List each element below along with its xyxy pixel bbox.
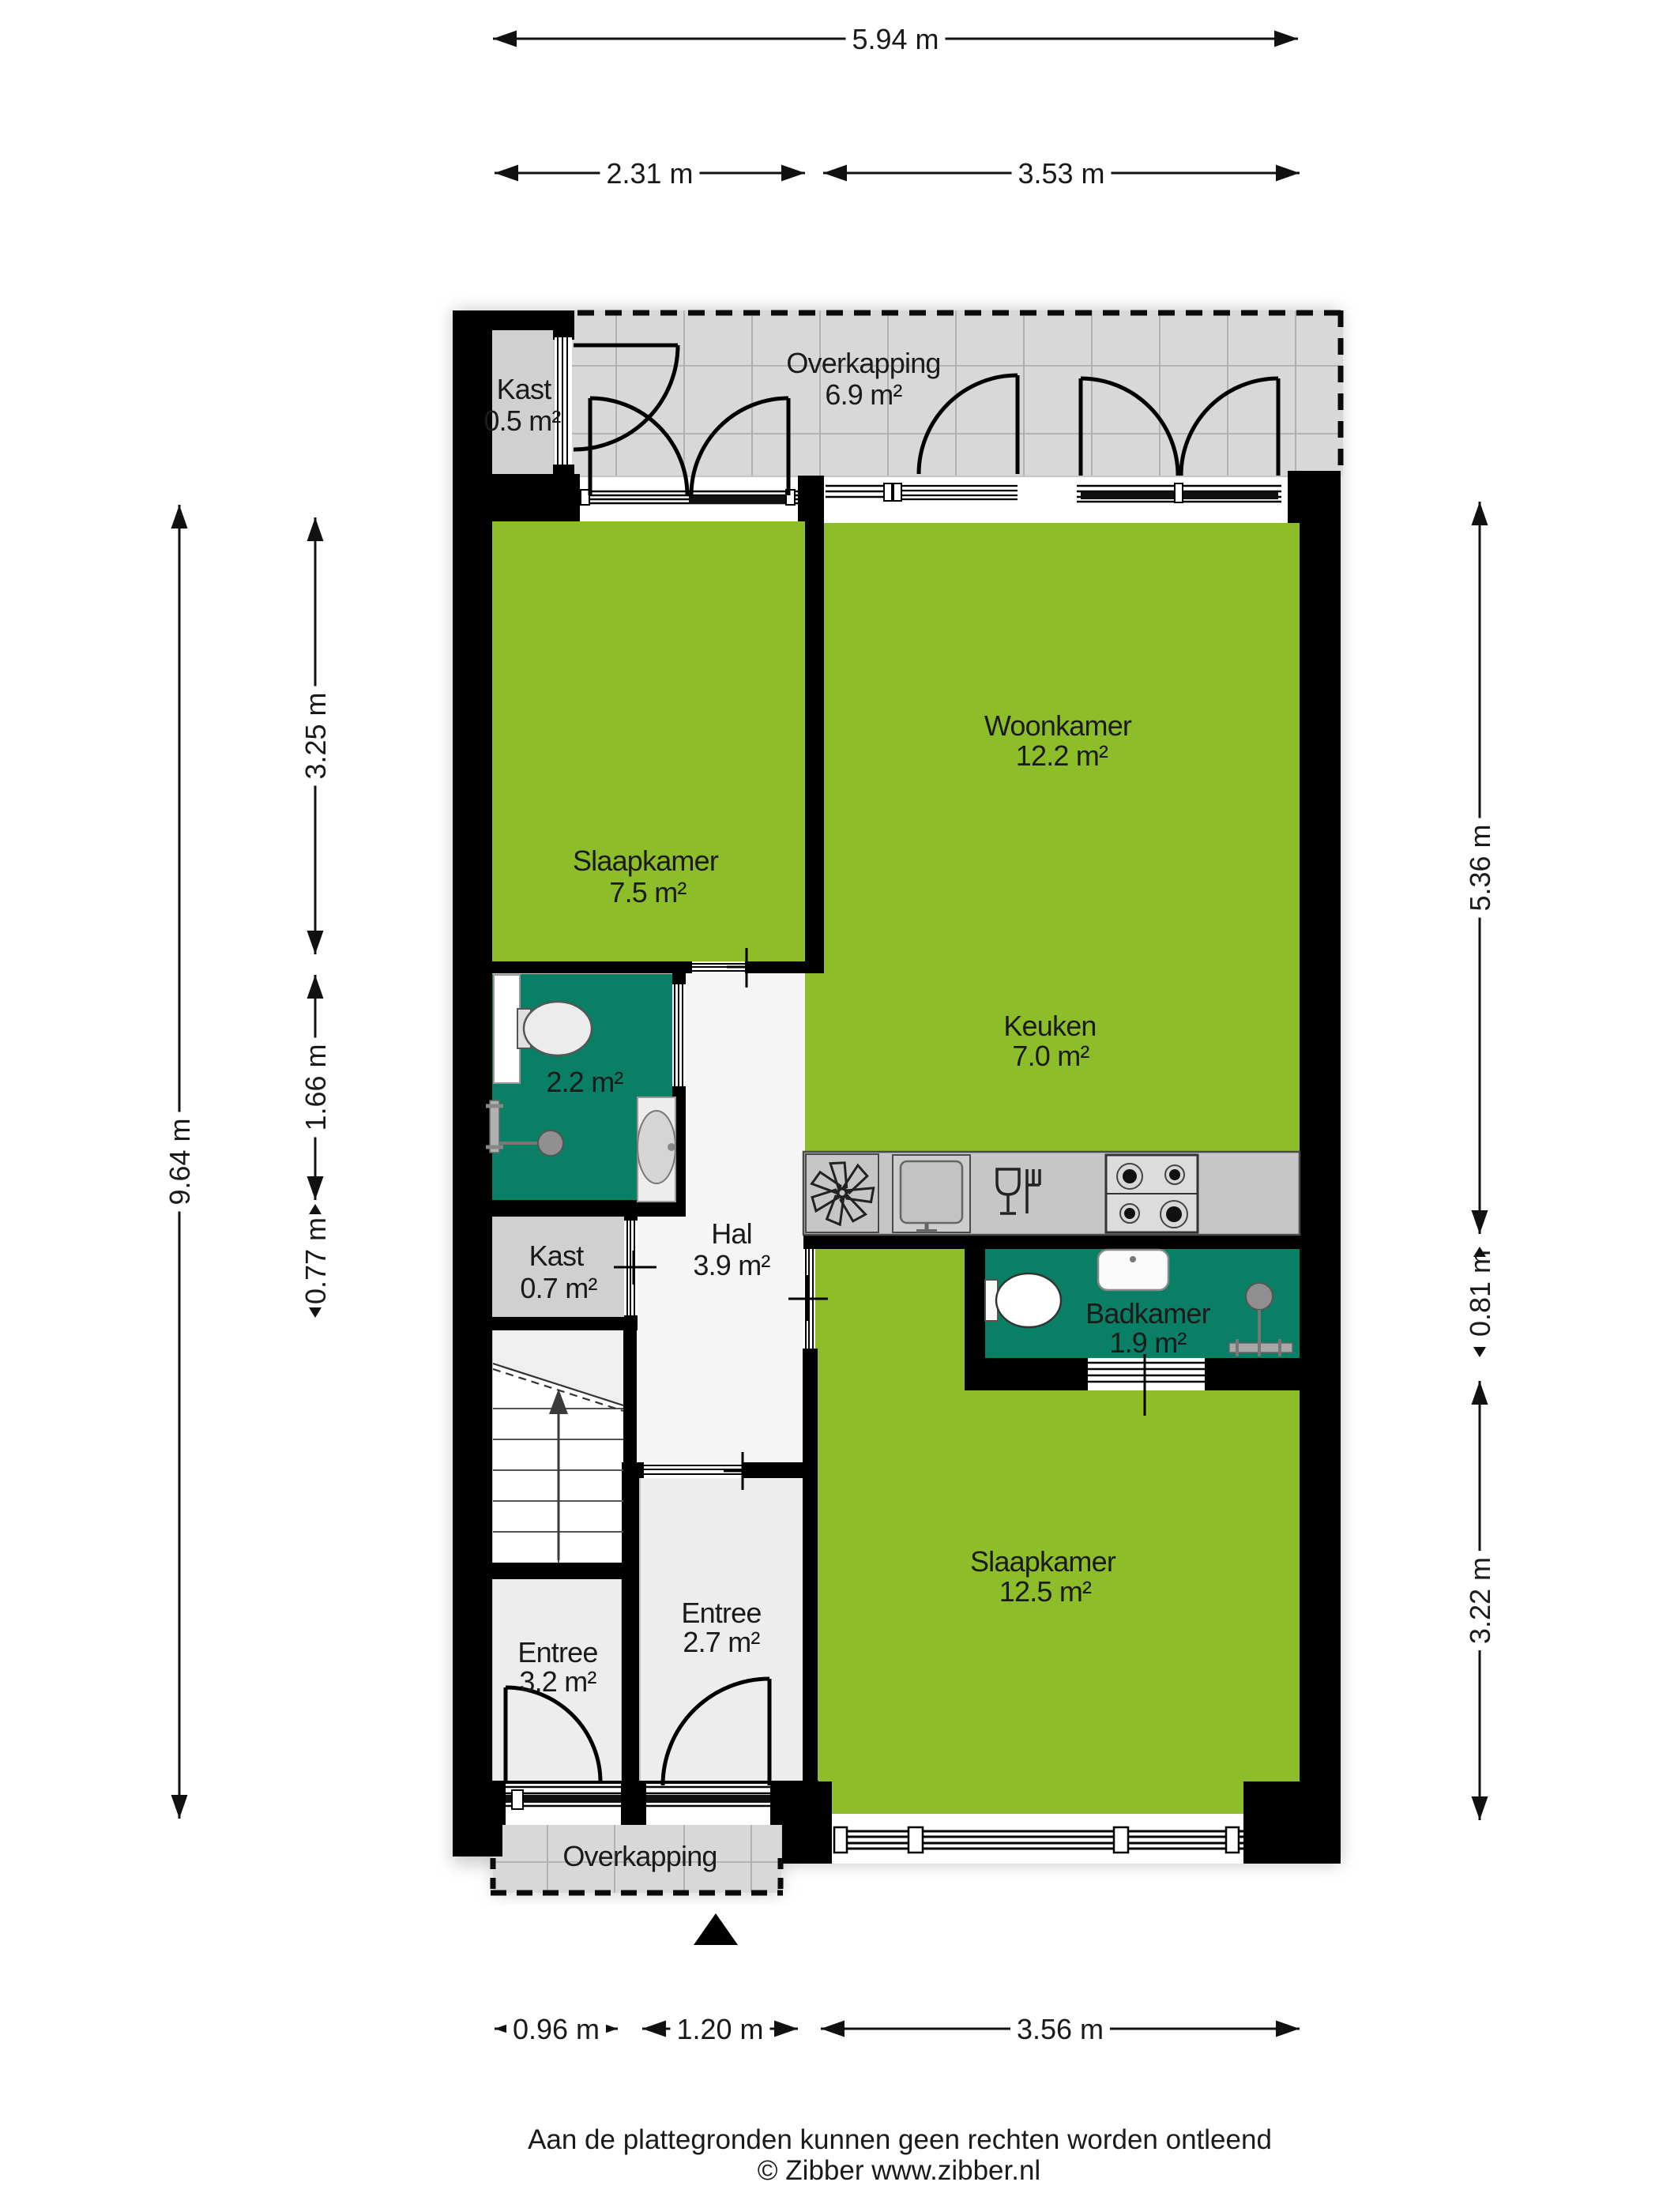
svg-text:3.2 m²: 3.2 m²: [519, 1665, 596, 1698]
svg-text:5.94 m: 5.94 m: [852, 23, 939, 55]
svg-text:0.81 m: 0.81 m: [1464, 1250, 1496, 1337]
svg-text:Hal: Hal: [711, 1217, 752, 1250]
svg-text:0.7 m²: 0.7 m²: [520, 1272, 597, 1304]
svg-text:3.53 m: 3.53 m: [1018, 157, 1104, 190]
svg-text:0.77 m: 0.77 m: [299, 1217, 332, 1304]
svg-text:3.25 m: 3.25 m: [299, 692, 332, 779]
svg-text:12.5 m²: 12.5 m²: [999, 1575, 1092, 1608]
svg-text:9.64 m: 9.64 m: [164, 1118, 196, 1205]
svg-text:12.2 m²: 12.2 m²: [1016, 739, 1108, 772]
svg-text:© Zibber www.zibber.nl: © Zibber www.zibber.nl: [758, 2155, 1040, 2186]
svg-text:3.9 m²: 3.9 m²: [693, 1249, 770, 1281]
svg-text:Badkamer: Badkamer: [1085, 1297, 1210, 1330]
svg-text:1.9 m²: 1.9 m²: [1109, 1326, 1187, 1359]
svg-text:Slaapkamer: Slaapkamer: [970, 1545, 1116, 1578]
svg-text:Overkapping: Overkapping: [786, 347, 940, 379]
svg-text:0.5 m²: 0.5 m²: [483, 404, 561, 437]
svg-text:5.36 m: 5.36 m: [1464, 824, 1496, 911]
svg-text:Entree: Entree: [681, 1597, 761, 1629]
svg-text:0.96 m: 0.96 m: [513, 2013, 600, 2045]
svg-text:3.56 m: 3.56 m: [1017, 2013, 1104, 2045]
svg-text:2.7 m²: 2.7 m²: [683, 1626, 760, 1658]
svg-text:Overkapping: Overkapping: [562, 1840, 717, 1872]
svg-text:7.0 m²: 7.0 m²: [1012, 1040, 1089, 1072]
svg-text:3.22 m: 3.22 m: [1464, 1557, 1496, 1644]
svg-text:Kast: Kast: [497, 373, 552, 405]
svg-text:Entree: Entree: [517, 1636, 597, 1668]
svg-text:6.9 m²: 6.9 m²: [825, 378, 902, 411]
svg-text:Slaapkamer: Slaapkamer: [573, 845, 719, 877]
svg-text:1.20 m: 1.20 m: [676, 2013, 763, 2045]
svg-text:Woonkamer: Woonkamer: [984, 709, 1132, 742]
svg-text:2.2 m²: 2.2 m²: [546, 1066, 623, 1098]
svg-text:2.31 m: 2.31 m: [606, 157, 693, 190]
svg-text:Kast: Kast: [529, 1240, 585, 1272]
svg-text:1.66 m: 1.66 m: [299, 1044, 332, 1130]
svg-text:7.5 m²: 7.5 m²: [609, 876, 687, 908]
svg-text:Keuken: Keuken: [1003, 1010, 1096, 1042]
svg-text:Aan de plattegronden kunnen ge: Aan de plattegronden kunnen geen rechten…: [528, 2124, 1272, 2155]
